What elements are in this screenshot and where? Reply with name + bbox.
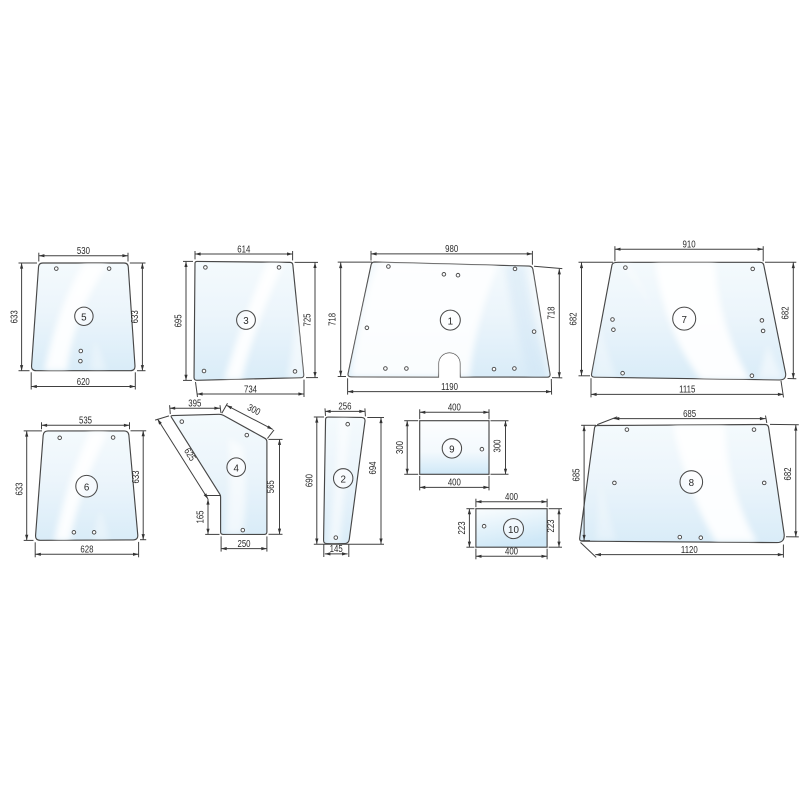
svg-text:628: 628 bbox=[80, 544, 93, 555]
svg-text:6: 6 bbox=[84, 482, 90, 493]
svg-text:535: 535 bbox=[79, 415, 92, 426]
svg-text:565: 565 bbox=[265, 480, 276, 493]
svg-text:9: 9 bbox=[449, 445, 454, 456]
svg-text:682: 682 bbox=[780, 306, 791, 319]
svg-text:980: 980 bbox=[445, 243, 458, 254]
svg-text:400: 400 bbox=[448, 402, 461, 413]
svg-text:620: 620 bbox=[77, 376, 90, 387]
svg-text:7: 7 bbox=[681, 315, 686, 326]
svg-text:145: 145 bbox=[330, 543, 343, 554]
svg-text:400: 400 bbox=[448, 477, 461, 488]
svg-text:400: 400 bbox=[505, 546, 518, 557]
svg-text:633: 633 bbox=[8, 310, 19, 323]
svg-text:5: 5 bbox=[81, 313, 87, 324]
svg-text:633: 633 bbox=[129, 310, 140, 323]
svg-text:682: 682 bbox=[568, 312, 579, 325]
svg-text:694: 694 bbox=[367, 461, 378, 474]
svg-text:223: 223 bbox=[456, 521, 467, 534]
svg-text:530: 530 bbox=[77, 245, 90, 256]
svg-text:300: 300 bbox=[394, 441, 405, 454]
svg-text:2: 2 bbox=[340, 475, 345, 486]
svg-text:1120: 1120 bbox=[681, 544, 698, 555]
svg-text:1: 1 bbox=[448, 316, 453, 327]
svg-text:250: 250 bbox=[237, 538, 250, 549]
svg-text:3: 3 bbox=[243, 316, 249, 327]
svg-text:685: 685 bbox=[683, 408, 696, 419]
svg-text:8: 8 bbox=[689, 478, 695, 489]
svg-text:395: 395 bbox=[188, 398, 201, 409]
svg-text:718: 718 bbox=[327, 313, 338, 326]
svg-text:300: 300 bbox=[492, 439, 503, 452]
svg-text:10: 10 bbox=[508, 525, 519, 536]
svg-text:1115: 1115 bbox=[679, 384, 695, 395]
svg-text:734: 734 bbox=[244, 383, 257, 394]
svg-text:718: 718 bbox=[546, 306, 557, 319]
svg-text:223: 223 bbox=[545, 519, 556, 532]
svg-text:685: 685 bbox=[571, 468, 582, 481]
svg-text:614: 614 bbox=[237, 243, 250, 254]
svg-text:4: 4 bbox=[233, 463, 239, 474]
svg-text:725: 725 bbox=[302, 313, 313, 326]
svg-text:633: 633 bbox=[130, 470, 141, 483]
svg-text:400: 400 bbox=[505, 491, 518, 502]
svg-text:910: 910 bbox=[683, 239, 696, 250]
svg-text:1190: 1190 bbox=[441, 381, 458, 392]
svg-text:682: 682 bbox=[782, 467, 793, 480]
svg-text:695: 695 bbox=[173, 314, 184, 327]
svg-text:690: 690 bbox=[304, 474, 315, 487]
svg-text:633: 633 bbox=[14, 482, 25, 495]
svg-text:256: 256 bbox=[338, 401, 351, 412]
svg-text:165: 165 bbox=[195, 510, 206, 523]
